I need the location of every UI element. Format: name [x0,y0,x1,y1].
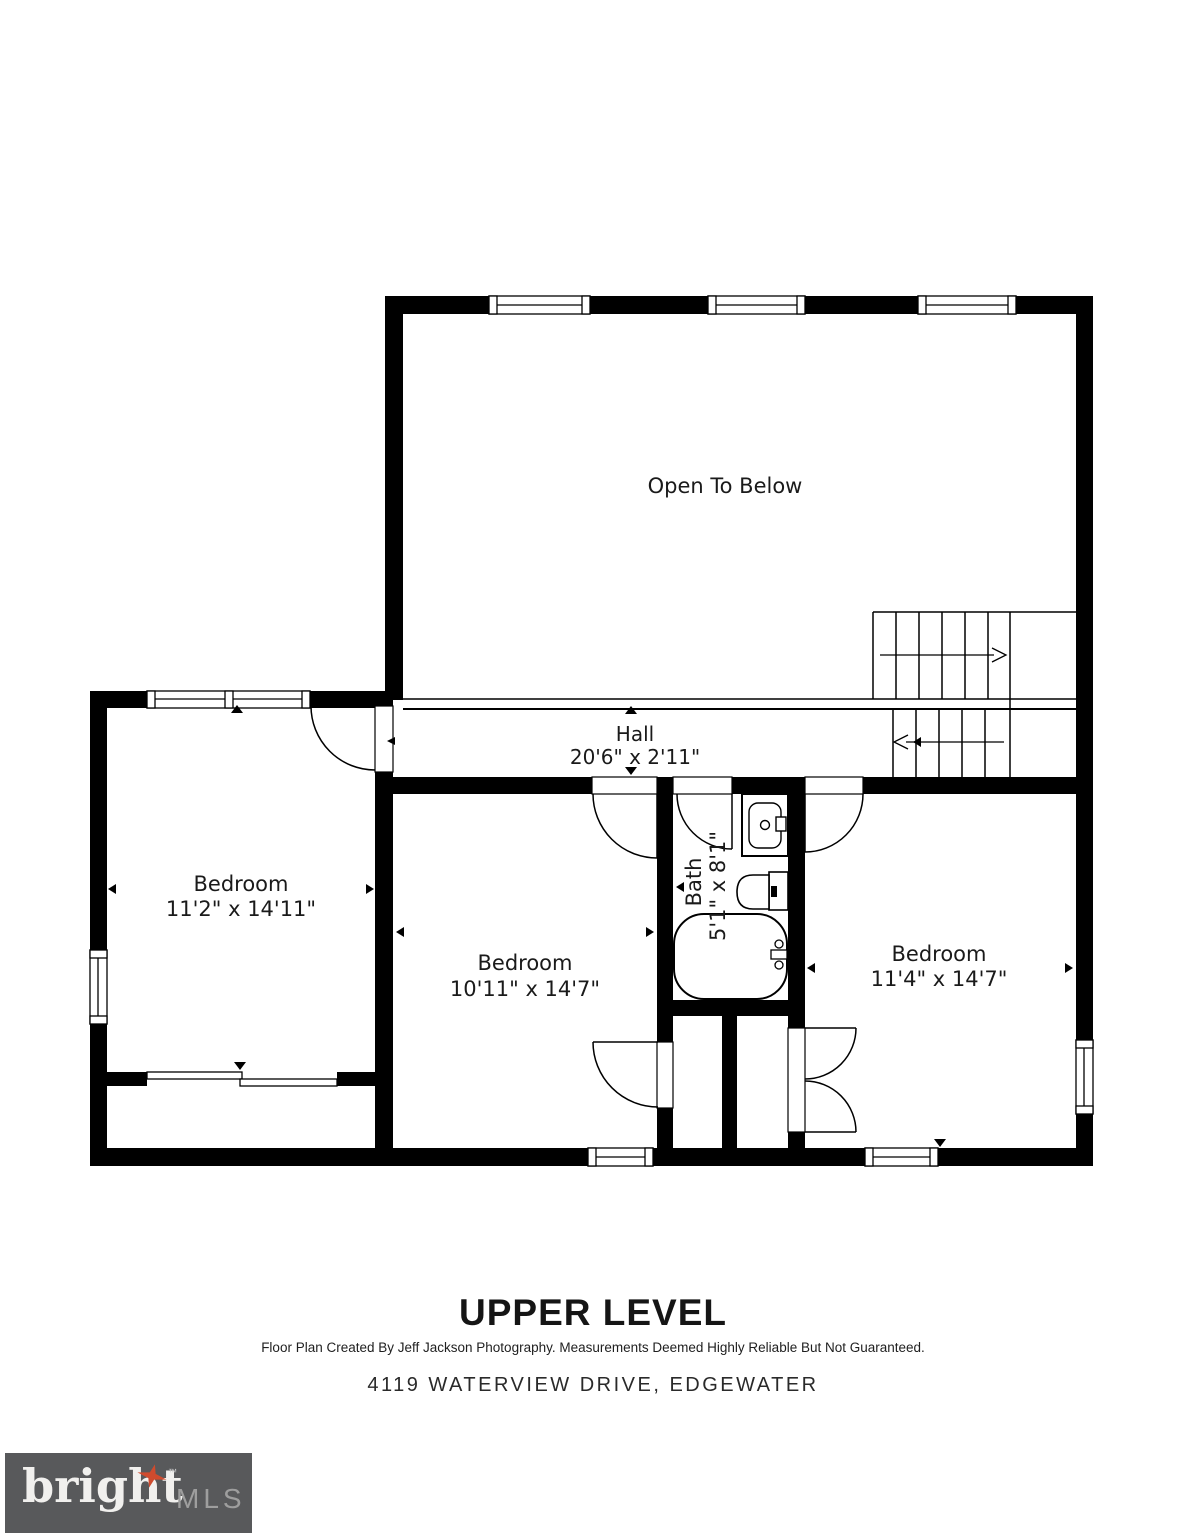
marker-down [234,1062,246,1070]
window-top-1 [489,296,590,314]
marker-left [108,884,116,894]
logo-trademark: ™ [168,1467,177,1477]
star-icon [135,1463,169,1489]
door-swings [311,706,863,1132]
floor-plan-page: Open To Below Hall 20'6" x 2'11" Bedroom… [0,0,1186,1536]
level-title: UPPER LEVEL [0,1292,1186,1334]
marker-left [396,927,404,937]
door-jamb-bath [673,777,732,794]
wall-hall-south [375,777,1093,794]
door-jamb-right-closet [788,1028,805,1132]
wall-sliding-stub-west [90,1072,147,1086]
disclaimer: Floor Plan Created By Jeff Jackson Photo… [0,1340,1186,1355]
bedroom-middle-dimensions: 10'11" x 14'7" [450,977,600,1001]
hall-label: Hall [616,722,654,746]
bedroom-right-label: Bedroom [892,942,987,966]
stair-treads-lower [916,709,985,777]
wall-right [1076,296,1093,1166]
bedroom-left-dimensions: 11'2" x 14'11" [166,897,316,921]
wall-closet-divider [722,1016,737,1150]
logo-suffix-text: MLS [176,1483,246,1515]
door-jamb-right-bedroom [805,777,863,794]
wall-sliding-stub-east [337,1072,393,1086]
wall-bath-south [657,1000,805,1016]
bedroom-middle-label: Bedroom [478,951,573,975]
staircase [403,612,1076,777]
bath-dimensions: 5'1" x 8'1" [706,831,730,941]
door-left-bedroom [311,706,375,770]
stair-direction-arrow-up [880,648,1006,662]
window-left-bedroom-top [147,691,310,708]
bath-label: Bath [682,858,706,907]
window-right-bedroom-bottom [865,1148,938,1166]
door-jamb-middle-bedroom [592,777,657,794]
windows [90,296,1093,1166]
walls [90,296,1093,1166]
hall-dimensions: 20'6" x 2'11" [570,745,700,769]
address: 4119 WATERVIEW DRIVE, EDGEWATER [0,1374,1186,1397]
marker-down [934,1139,946,1147]
toilet [737,872,788,910]
door-jamb-left-closet [657,1042,673,1108]
bathtub [674,914,787,999]
stair-direction-arrow-down [894,735,1004,749]
bedroom-left-label: Bedroom [194,872,289,896]
marker-right [366,884,374,894]
wall-left-outer [90,691,107,1166]
window-left-bedroom-side [90,950,107,1024]
hall-railing [403,699,1076,709]
door-middle-bedroom [593,794,657,858]
window-top-2 [708,296,805,314]
door-right-bedroom [805,794,863,852]
marker-right [646,927,654,937]
window-top-3 [918,296,1016,314]
sliding-door-left-bedroom [147,1072,337,1086]
wall-open-area-west [385,296,403,700]
bright-mls-logo: bright ™ MLS [5,1453,252,1533]
marker-right [1065,963,1073,973]
door-right-closet-double [805,1028,856,1132]
door-left-closet [593,1042,658,1107]
bedroom-right-dimensions: 11'4" x 14'7" [871,967,1008,991]
window-right-bedroom-side [1076,1040,1093,1114]
marker-left [807,963,815,973]
open-area-label: Open To Below [648,474,803,498]
window-middle-bedroom-bottom [588,1148,653,1166]
door-jamb-left-bedroom [375,706,393,772]
sink-vanity [742,794,788,856]
